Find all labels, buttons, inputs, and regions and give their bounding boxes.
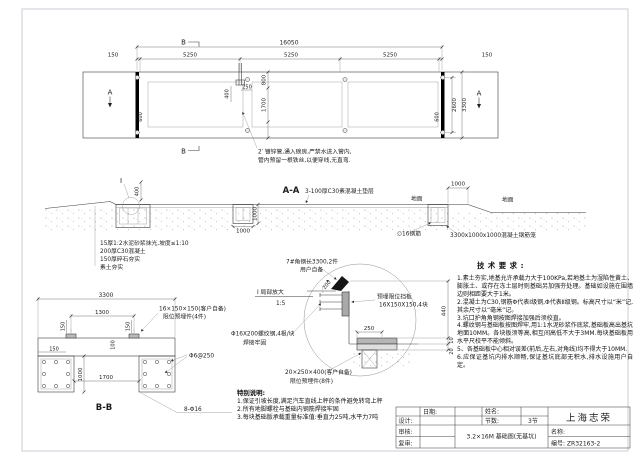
special-item-3: 3.每块基础版承载重量标准值:垂直力25吨,水平力7吨 (237, 414, 409, 422)
dim-5250-3: 5250 (383, 53, 397, 59)
section-aa-title: A-A (283, 186, 300, 196)
layer-3: 150厚碎石夯实 (100, 255, 140, 263)
rebar-label: ∅16钢筋 (397, 230, 421, 238)
date-label: 日期: (423, 408, 437, 416)
dim-2600: 2600 (452, 98, 458, 112)
dim-600-right: 600 (435, 112, 441, 122)
rebar-cage-right (139, 356, 175, 392)
dim-800: 800 (262, 74, 268, 85)
dim-3300: 3300 (462, 98, 468, 112)
dim-1000-top: 1000 (451, 182, 465, 188)
rod-label-1: Φ16X200螺纹钢,4根/块 (231, 330, 295, 338)
note-leader (243, 112, 258, 148)
tech-title: 技术要求: (477, 260, 633, 271)
tech-item-1: 1.素土夯实,地基允许承载力大于100KPa,若地基土为湿陷性黄土、膨胀土、或存… (457, 275, 633, 299)
special-title: 特别说明: (237, 388, 409, 397)
plate-label-2: 16X150X150,4块 (379, 301, 428, 309)
title-block: 日期: 姓名: 设计: 节数: 3节 审核: 复审: 3.2×16M 基础图(无… (396, 407, 630, 448)
sections-label: 节数: (485, 417, 499, 425)
ground-label-left: 地面 (411, 195, 423, 203)
main-rebar-label: 8-Φ16 (184, 407, 202, 413)
grout-layer (357, 344, 397, 350)
anchor-bolts (135, 75, 445, 134)
bb-plate-label-1: 16×150×150(客户自备) (159, 305, 226, 313)
detail-i: 7#角钢长3300,2件 用户自备 Ⅰ 局部放大 1:5 预埋限位挡板 16X1… (231, 258, 455, 386)
dim-1700-bb: 1700 (99, 375, 113, 381)
section-bb: 3300 1300 150 150 150 100 1000 1700 16×1… (37, 293, 233, 413)
detail-scale: 1:5 (276, 301, 286, 307)
detail-title: Ⅰ 局部放大 (257, 288, 284, 296)
bedding-label: 3-100厚C30素混凝土垫层 (305, 187, 374, 195)
embed-label-2: 限位预埋件(8件) (290, 377, 333, 385)
company-name: 上海志荣 (566, 412, 612, 424)
sections-value: 3节 (528, 417, 538, 425)
dim-150-plate-left: 150 (61, 322, 67, 332)
title-label: 名称: (551, 428, 565, 436)
stirrup-label: Φ6@250 (189, 354, 214, 360)
layer-4: 素土夯实 (100, 263, 123, 271)
plate-label-1: 预埋限位挡板 (377, 293, 412, 301)
dim-150-right: 150 (482, 53, 493, 59)
embedded-plate (342, 292, 349, 316)
rod-label-2: 焊接牢固 (243, 339, 266, 347)
dim-150-left: 150 (108, 53, 119, 59)
tech-item-2: 2.混凝土为C30,钢筋Φ代表Ⅰ级钢,Φ代表Ⅱ级钢。标高尺寸以“米”记,其余尺寸… (457, 299, 633, 315)
cage-label: 3300x1000x1000混凝土钢筋笼 (450, 231, 536, 239)
drawing-title: 3.2×16M 基础图(无基坑) (467, 433, 537, 441)
dim-1000-bb: 1000 (78, 367, 84, 381)
marker-a-left: A (108, 89, 113, 97)
drawing-number: 编号: ZR32163-2 (551, 440, 600, 448)
layer-2: 200厚C30混凝土 (100, 247, 146, 255)
marker-b-bottom: B (181, 148, 186, 156)
name-label: 姓名: (485, 408, 499, 416)
dim-150-plate-right: 150 (126, 322, 132, 332)
marker-b-top: B (181, 39, 186, 47)
conduit-note-line1: 2′ 镀锌管,通入磅房,严禁水进入管内, (258, 148, 352, 156)
dim-600-left: 600 (138, 112, 144, 122)
conduit-symbol (236, 63, 245, 85)
tech-item-4: 4.螺纹钢与基础板按图焊牢,用1:1水泥砂浆作底浆,基础板高出基坑地面10MM。… (457, 322, 633, 346)
section-bb-title: B-B (96, 403, 113, 413)
angle-steel (331, 276, 349, 291)
dim-16050: 16050 (279, 40, 298, 47)
tech-item-6: 6.应保证基坑内排水顺畅,保证基坑底部无积水,排水设施用户自定。 (457, 354, 633, 370)
technical-requirements: 技术要求: 1.素土夯实,地基允许承载力大于100KPa,若地基土为湿陷性黄土、… (457, 260, 633, 370)
dim-1000-width: 1000 (236, 229, 250, 235)
angle-label-1: 7#角钢长3300,2件 (286, 258, 338, 266)
section-aa: A-A 3-100厚C30素混凝土垫层 地面 地面 1000 1000 1000… (45, 177, 586, 271)
dim-1700: 1700 (262, 98, 268, 112)
dim-1300: 1300 (95, 310, 109, 316)
check-label: 审核: (399, 428, 413, 436)
angle-label-2: 用户自备 (300, 266, 323, 274)
rebar-cage-left (38, 356, 74, 392)
ground-label-right: 地面 (502, 196, 514, 204)
recheck-label: 复审: (399, 440, 413, 448)
dim-10: 10 (449, 337, 455, 343)
dim-5250-1: 5250 (183, 53, 197, 59)
drawing-sheet: 16050 150 5250 5250 5250 150 2600 3300 8… (0, 0, 640, 461)
conduit-note-line2: 管内预留一根铁丝,以便穿线,无直弯. (258, 156, 351, 164)
bb-plate-label-2: 限位预埋件(4件) (163, 313, 206, 321)
dim-400-aa: 400 (135, 187, 141, 197)
dim-3300-bb: 3300 (99, 293, 114, 299)
dim-200: 200 (322, 280, 333, 291)
layer-1: 15厚1:2水泥砂浆抹光,坡度≤1:10 (100, 239, 189, 247)
plan-view: 16050 150 5250 5250 5250 150 2600 3300 8… (83, 39, 498, 165)
dim-100: 100 (111, 340, 117, 350)
dim-150-edge: 150 (49, 347, 59, 353)
dim-440: 440 (442, 305, 448, 316)
dim-20: 20 (449, 348, 455, 354)
base-plate (357, 338, 397, 344)
dim-250: 250 (242, 85, 252, 91)
detail-mark-label: I (120, 177, 122, 185)
tech-item-5: 5、各基础板中心相对误差(前后,左右,对角线)均不得大于10MM. (457, 346, 633, 354)
special-item-2: 2.所有地脚螺栓与基础内钢筋焊接牢固 (237, 406, 409, 414)
special-notes: 特别说明: 1.保证引坡长度,满足汽车直线上秤的条件避免转弯上秤 2.所有地脚螺… (237, 388, 409, 422)
dim-400: 400 (225, 89, 231, 99)
marker-a-right: A (477, 90, 482, 98)
dim-5250-2: 5250 (284, 53, 298, 59)
dim-1000-depth: 1000 (253, 207, 259, 221)
embed-label-1: 20×250×400(客户自备) (285, 368, 352, 376)
special-item-1: 1.保证引坡长度,满足汽车直线上秤的条件避免转弯上秤 (237, 398, 409, 406)
anchor-rods (320, 293, 342, 311)
plan-dimension-lines (136, 45, 467, 140)
dim-250-detail: 250 (364, 326, 375, 332)
